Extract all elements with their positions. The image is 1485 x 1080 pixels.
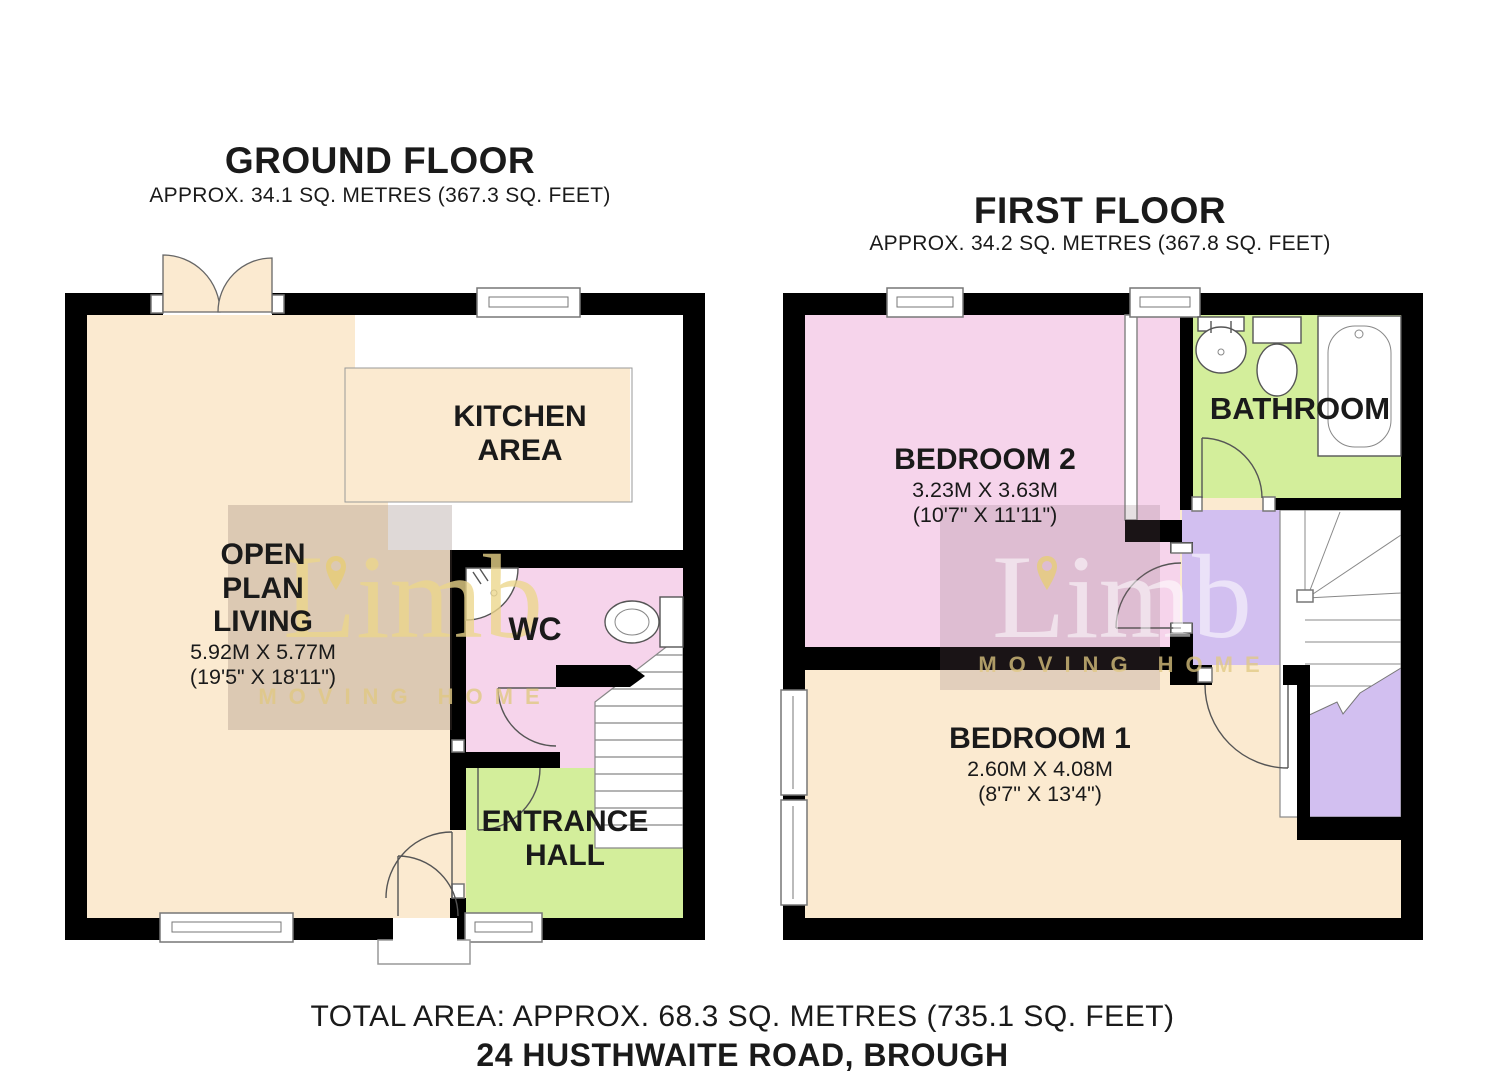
bedroom2-label: BEDROOM 2 [835, 443, 1135, 477]
kitchen-label: KITCHEN AREA [420, 400, 620, 467]
first-floor-title: FIRST FLOOR [800, 190, 1400, 231]
ground-floor-title: GROUND FLOOR [80, 140, 680, 181]
ground-floor-area: APPROX. 34.1 SQ. METRES (367.3 SQ. FEET) [80, 184, 680, 208]
watermark-brand-first: Limb [972, 528, 1272, 666]
bedroom2-dims-metric: 3.23M X 3.63M [835, 478, 1135, 502]
bedroom1-label: BEDROOM 1 [890, 722, 1190, 756]
bedroom1-dims-metric: 2.60M X 4.08M [890, 757, 1190, 781]
living-room-dims-imperial: (19'5" X 18'11") [143, 665, 383, 689]
living-room-label: OPEN PLAN LIVING [203, 538, 323, 639]
bedroom2-dims-imperial: (10'7" X 11'11") [835, 503, 1135, 527]
entrance-hall-label: ENTRANCE HALL [465, 805, 665, 872]
bathroom-toilet [1257, 344, 1297, 396]
wc-cistern [660, 597, 683, 647]
floorplan-page: Limb MOVING HOME Limb MOVING HOME GROUND… [0, 0, 1485, 1080]
first-floor-area: APPROX. 34.2 SQ. METRES (367.8 SQ. FEET) [800, 232, 1400, 256]
location-pin-icon [325, 556, 347, 612]
total-area-text: TOTAL AREA: APPROX. 68.3 SQ. METRES (735… [0, 1000, 1485, 1034]
watermark-tagline-first: MOVING HOME [965, 652, 1285, 678]
toilet-cistern [1253, 317, 1301, 343]
bathroom-label: BATHROOM [1190, 392, 1410, 427]
bathroom-sink [1196, 327, 1246, 373]
living-room-dims-metric: 5.92M X 5.77M [143, 640, 383, 664]
wc-toilet [605, 601, 659, 643]
location-pin-icon [1036, 556, 1058, 612]
bathtub [1318, 316, 1401, 456]
bedroom1-dims-imperial: (8'7" X 13'4") [890, 782, 1190, 806]
wc-label: WC [500, 612, 570, 648]
address-text: 24 HUSTHWAITE ROAD, BROUGH [0, 1038, 1485, 1074]
